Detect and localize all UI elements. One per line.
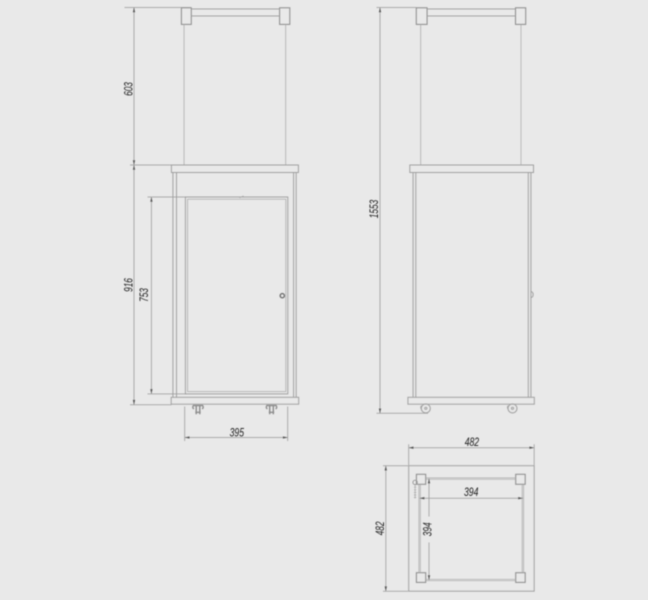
svg-text:394: 394 bbox=[464, 487, 479, 500]
svg-text:482: 482 bbox=[465, 437, 480, 450]
svg-text:916: 916 bbox=[123, 278, 136, 292]
svg-text:603: 603 bbox=[123, 82, 136, 96]
svg-text:753: 753 bbox=[139, 288, 152, 302]
svg-text:1553: 1553 bbox=[369, 199, 382, 218]
svg-text:394: 394 bbox=[422, 522, 435, 536]
svg-text:395: 395 bbox=[230, 427, 245, 440]
svg-text:482: 482 bbox=[375, 521, 388, 535]
